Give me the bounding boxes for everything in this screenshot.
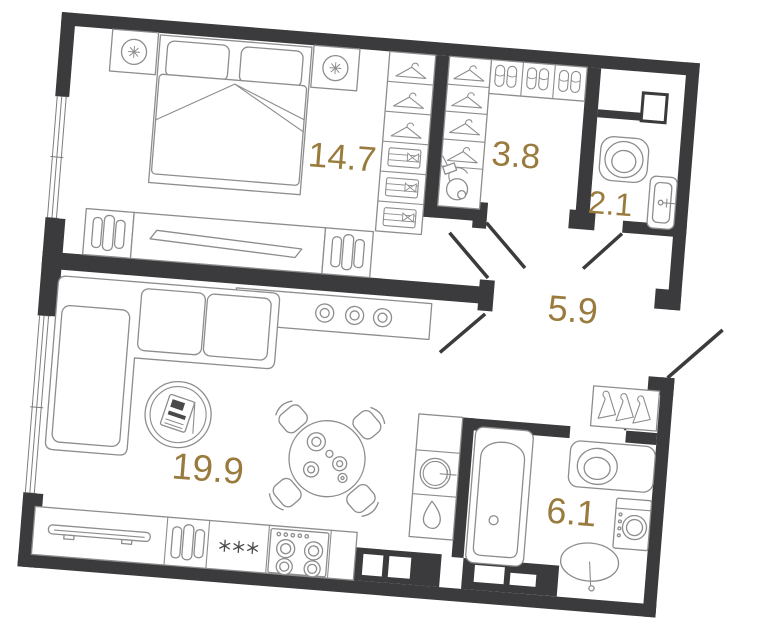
- book-icon: [181, 524, 194, 560]
- round-rug-magazine: [143, 379, 214, 450]
- sofa-cushion: [203, 294, 272, 361]
- door-swing-living-upper: [446, 233, 491, 278]
- drain-icon: [489, 515, 499, 525]
- book-icon: [102, 215, 115, 251]
- toilet: [598, 136, 649, 184]
- room-hallway: 5.9: [435, 220, 730, 437]
- wall-bathroom-top-right: [625, 431, 657, 445]
- dining-set: [264, 396, 390, 522]
- room-dressing: 3.8: [438, 56, 588, 217]
- floor-plan-page: 14.7: [0, 0, 765, 640]
- blanket: [151, 74, 307, 186]
- area-label-wc: 2.1: [587, 184, 634, 223]
- area-label-bedroom: 14.7: [307, 135, 378, 179]
- sofa-cushion: [137, 288, 206, 355]
- area-label-bathroom: 6.1: [545, 490, 598, 535]
- book-icon: [171, 527, 182, 559]
- washing-machine: [613, 498, 652, 551]
- window-left-bedroom: [45, 96, 68, 219]
- book-icon: [330, 236, 341, 267]
- book-icon: [353, 239, 364, 268]
- door-swing-living-lower: [440, 311, 485, 356]
- slipper-shelf: [489, 60, 587, 102]
- book-icon: [91, 217, 102, 248]
- area-label-dressing: 3.8: [490, 134, 542, 177]
- room-living-kitchen: 19.9: [31, 273, 471, 588]
- vent-duct-slot: [388, 556, 412, 579]
- floor-plan: 14.7: [0, 0, 765, 640]
- entry-jamb-top: [654, 289, 682, 311]
- double-bed: [149, 35, 312, 195]
- media-cabinet-right: [322, 228, 374, 278]
- area-label-hallway: 5.9: [546, 287, 599, 332]
- book-icon: [114, 220, 125, 249]
- nightstand-left: [109, 29, 158, 75]
- area-label-living: 19.9: [170, 445, 245, 492]
- book-icon: [341, 234, 354, 270]
- coat-rack: [591, 386, 660, 431]
- door-swing-closet: [483, 223, 528, 268]
- sofa-chaise-cushion: [52, 305, 131, 447]
- kitchen-counter-side: [409, 414, 463, 540]
- door-swing-wc: [583, 231, 622, 272]
- window-left-living: [23, 315, 50, 493]
- toilet: [568, 440, 656, 493]
- vent-duct-slot: [510, 573, 537, 587]
- media-cabinet-left: [83, 209, 135, 259]
- wall-cap-living-opening: [477, 279, 494, 311]
- vent-duct-slot: [362, 554, 384, 577]
- folded-clothes-icon: [385, 178, 418, 199]
- oval-sink: [558, 541, 620, 593]
- entry-door-swing: [668, 326, 723, 382]
- bathtub: [465, 427, 534, 567]
- nightstand-right: [311, 45, 360, 91]
- folded-clothes-icon: [388, 148, 421, 169]
- vent-duct-slot: [474, 565, 505, 584]
- vent-duct-box: [641, 93, 667, 123]
- room-bedroom: 14.7: [83, 28, 436, 281]
- stove: [268, 528, 329, 578]
- folded-clothes-icon: [383, 207, 416, 228]
- dining-table: [286, 418, 368, 500]
- wall-left-upper: [55, 12, 76, 97]
- wall-wc-stub: [597, 109, 645, 121]
- wash-basin: [647, 176, 678, 230]
- book-icon: [194, 529, 205, 558]
